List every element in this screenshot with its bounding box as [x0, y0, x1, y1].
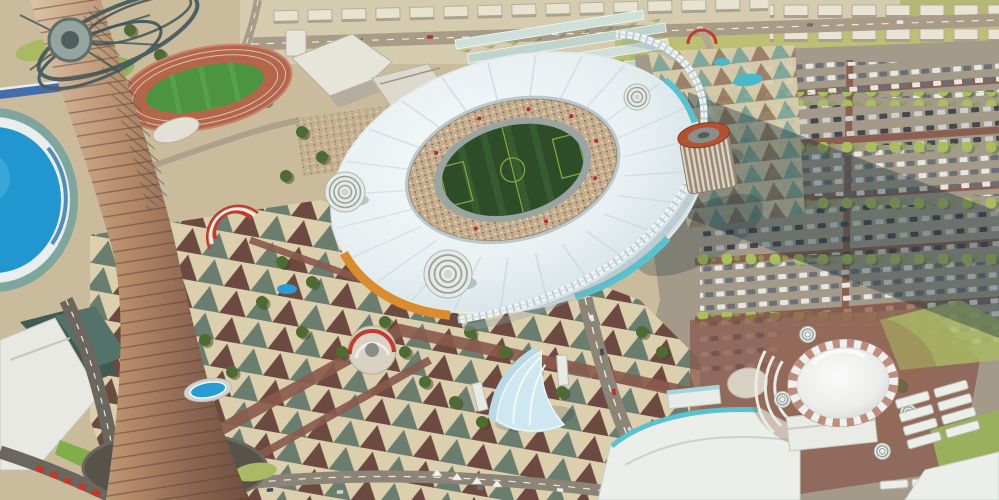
aerial-render-image [0, 0, 999, 500]
spiral-pavilion [348, 326, 396, 374]
plaza-pool [277, 284, 297, 294]
spiral-tower [624, 84, 650, 110]
